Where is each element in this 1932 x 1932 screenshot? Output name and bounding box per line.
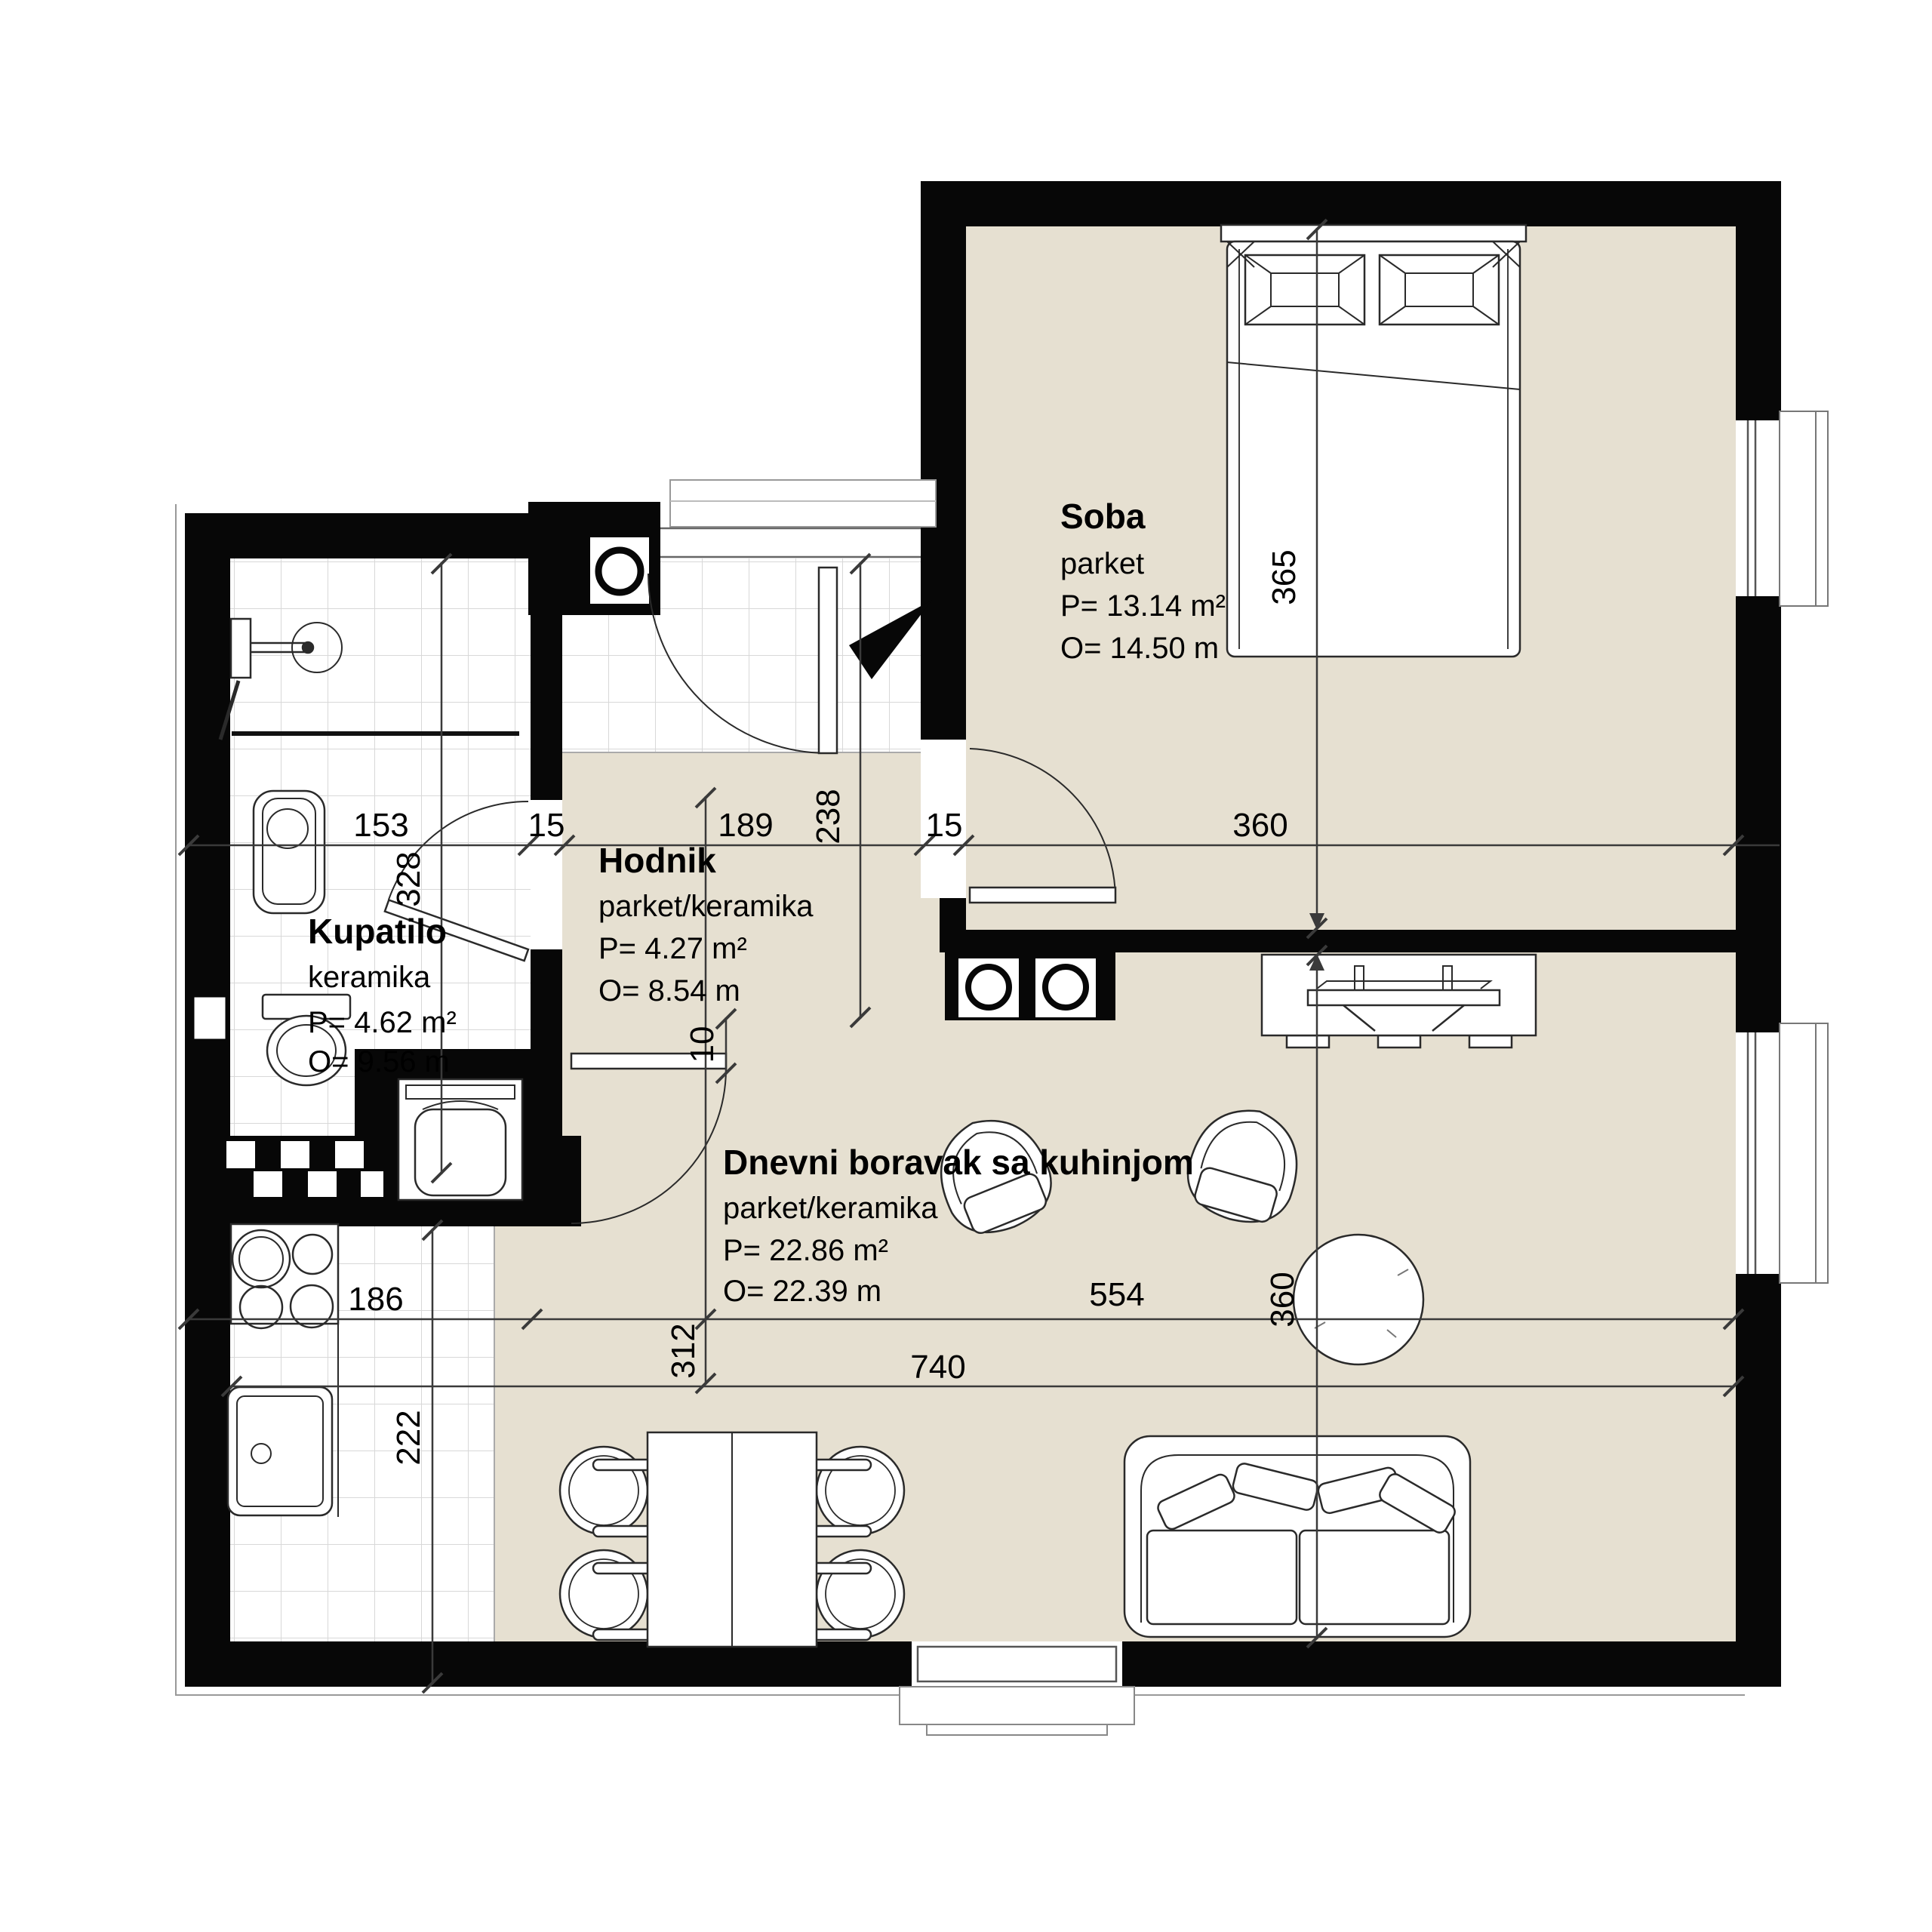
dim-15a: 15 bbox=[528, 807, 565, 844]
dim-360a: 360 bbox=[1232, 807, 1287, 844]
wall-left bbox=[185, 513, 230, 1687]
dim-360b: 360 bbox=[1264, 1272, 1301, 1327]
dim-365: 365 bbox=[1266, 549, 1303, 605]
shaft-circle-icon bbox=[598, 550, 641, 592]
balcony-door bbox=[900, 1641, 1134, 1735]
hodnik-area: P= 4.27 m² bbox=[598, 932, 747, 965]
kupatilo-perimeter: O= 9.56 m bbox=[308, 1045, 450, 1078]
cooktop bbox=[231, 1224, 338, 1328]
dnevni-area: P= 22.86 m² bbox=[723, 1234, 888, 1267]
tv bbox=[1308, 990, 1500, 1005]
hodnik-perimeter: O= 8.54 m bbox=[598, 974, 740, 1008]
wall-right-mid bbox=[1736, 596, 1781, 1032]
floor-plan: Soba parket P= 13.14 m² O= 14.50 m Hodni… bbox=[0, 0, 1932, 1932]
window-living bbox=[1736, 1023, 1828, 1283]
window-soba bbox=[1736, 411, 1828, 606]
shaft-circle-icon bbox=[1045, 967, 1086, 1008]
kupatilo-floor: keramika bbox=[308, 961, 431, 994]
soba-area: P= 13.14 m² bbox=[1060, 589, 1226, 623]
dnevni-perimeter: O= 22.39 m bbox=[723, 1275, 881, 1308]
round-table bbox=[1294, 1235, 1423, 1364]
dim-328: 328 bbox=[390, 851, 427, 906]
kitchen-sink bbox=[228, 1387, 332, 1515]
soba-perimeter: O= 14.50 m bbox=[1060, 632, 1219, 665]
bed-pillow bbox=[1380, 255, 1499, 325]
dim-238: 238 bbox=[810, 789, 847, 844]
bed-pillow bbox=[1245, 255, 1364, 325]
wall-bath-right bbox=[531, 558, 562, 800]
dining-table bbox=[648, 1432, 817, 1647]
soba-floor: parket bbox=[1060, 547, 1144, 580]
dim-554: 554 bbox=[1089, 1276, 1144, 1313]
wall-soba-south bbox=[940, 930, 1736, 952]
floor-plan-page: Soba parket P= 13.14 m² O= 14.50 m Hodni… bbox=[0, 0, 1932, 1932]
tv-stand bbox=[1262, 955, 1536, 1048]
dnevni-name: Dnevni boravak sa kuhinjom bbox=[723, 1143, 1194, 1182]
dim-740: 740 bbox=[910, 1349, 965, 1386]
washing-machine bbox=[398, 1079, 522, 1200]
wall-soba-top bbox=[921, 181, 1781, 226]
dim-15b: 15 bbox=[926, 807, 963, 844]
dim-10: 10 bbox=[684, 1026, 721, 1063]
dnevni-floor: parket/keramika bbox=[723, 1192, 938, 1225]
kupatilo-area: P= 4.62 m² bbox=[308, 1006, 457, 1039]
washbasin bbox=[254, 791, 325, 913]
shaft-circle-icon bbox=[968, 967, 1009, 1008]
dim-222: 222 bbox=[390, 1410, 427, 1465]
soba-name: Soba bbox=[1060, 497, 1146, 536]
dim-186: 186 bbox=[348, 1281, 403, 1318]
hodnik-floor: parket/keramika bbox=[598, 890, 814, 923]
kupatilo-name: Kupatilo bbox=[308, 912, 447, 951]
wall-right-upper bbox=[1736, 226, 1781, 420]
dim-153: 153 bbox=[353, 807, 408, 844]
dim-312: 312 bbox=[665, 1323, 702, 1378]
hodnik-name: Hodnik bbox=[598, 841, 716, 880]
bed-headboard bbox=[1221, 225, 1526, 241]
dim-189: 189 bbox=[718, 807, 773, 844]
wall-right-lower bbox=[1736, 1274, 1781, 1687]
wall-niche bbox=[193, 996, 226, 1040]
sofa bbox=[1124, 1436, 1470, 1637]
